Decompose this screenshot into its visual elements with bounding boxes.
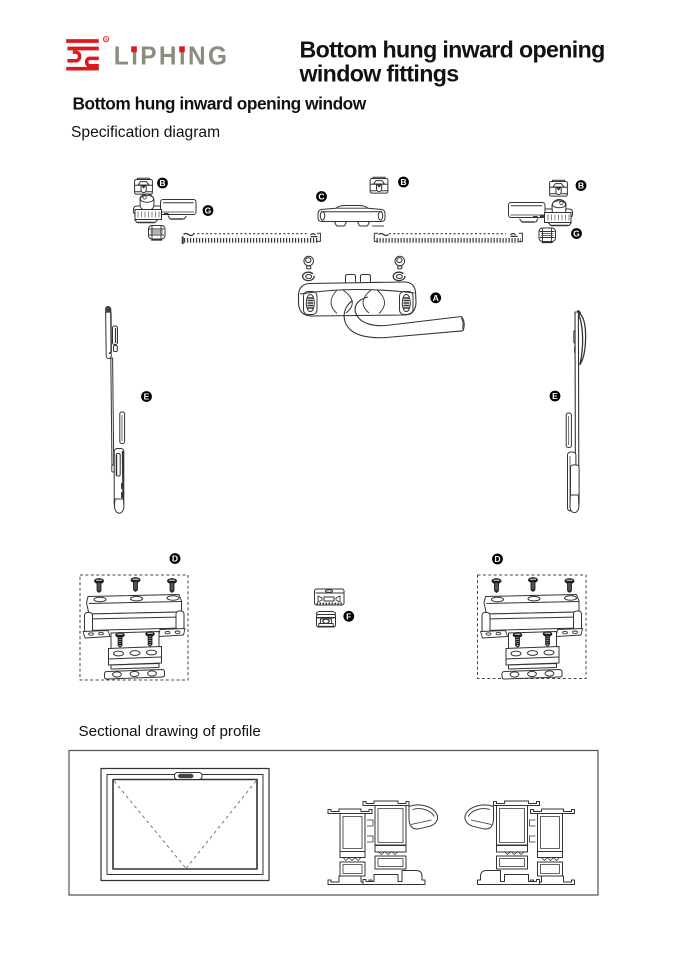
svg-text:A: A: [433, 293, 439, 303]
svg-text:D: D: [172, 554, 178, 564]
svg-text:B: B: [578, 181, 584, 191]
svg-text:C: C: [318, 192, 324, 202]
svg-text:F: F: [346, 612, 351, 622]
svg-text:E: E: [552, 391, 558, 401]
svg-text:G: G: [573, 229, 580, 239]
svg-text:E: E: [144, 392, 150, 402]
svg-text:B: B: [159, 178, 165, 188]
svg-text:LıPHıNG: LıPHıNG: [114, 41, 230, 71]
svg-text:Specification diagram: Specification diagram: [71, 124, 220, 141]
svg-text:window fittings: window fittings: [299, 60, 459, 86]
svg-text:B: B: [400, 177, 406, 187]
svg-text:Bottom hung inward opening: Bottom hung inward opening: [300, 37, 605, 63]
svg-text:D: D: [494, 554, 500, 564]
svg-text:Bottom hung inward opening win: Bottom hung inward opening window: [73, 94, 367, 114]
svg-text:Sectional drawing of profile: Sectional drawing of profile: [79, 723, 261, 740]
svg-text:G: G: [205, 206, 212, 216]
